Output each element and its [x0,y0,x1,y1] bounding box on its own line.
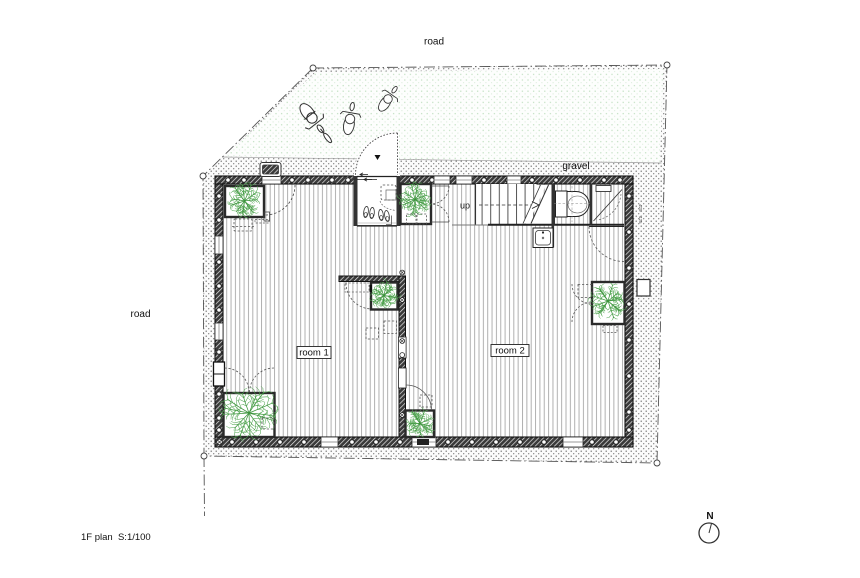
svg-text:room 2: room 2 [495,345,525,356]
svg-text:425: 425 [638,216,643,224]
svg-text:road: road [424,37,444,48]
svg-text:up: up [460,201,470,211]
svg-text:gravel: gravel [562,161,589,172]
svg-text:1F plan S:1/100: 1F plan S:1/100 [81,532,151,543]
svg-text:425: 425 [638,204,643,212]
svg-text:road: road [130,309,150,320]
svg-text:N: N [706,511,713,522]
svg-text:room 1: room 1 [299,347,329,358]
